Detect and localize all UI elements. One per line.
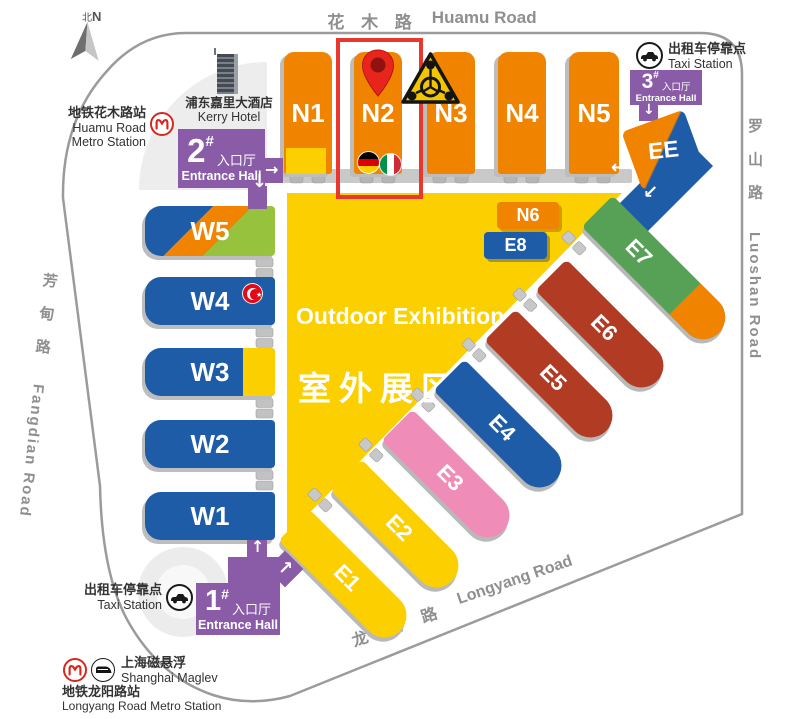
maglev-train-icon[interactable] xyxy=(91,658,115,682)
hall-w3[interactable]: W3 xyxy=(145,348,275,396)
taxi-ne-icon[interactable] xyxy=(636,42,663,69)
hall-w3-yellow-section xyxy=(243,348,275,396)
compass-label-en: N xyxy=(92,9,101,24)
huamu-metro-zh: 地铁花木路站 xyxy=(38,106,146,121)
hall-w5[interactable]: W5 xyxy=(145,206,275,256)
arrow-down-left-icon: ↙ xyxy=(643,184,658,202)
hall-e5-label: E5 xyxy=(534,359,571,396)
hall-e3-label: E3 xyxy=(431,459,468,496)
hall-w2-label: W2 xyxy=(191,429,230,460)
hall-w5-label: W5 xyxy=(191,216,230,247)
machinery-warning-icon[interactable] xyxy=(399,49,462,107)
luoshan-road-en: Luoshan Road xyxy=(746,232,763,360)
hall-n5-label: N5 xyxy=(577,98,610,129)
hall-e6-label: E6 xyxy=(585,309,622,346)
road-label-huamu: 花 木 路 Huamu Road xyxy=(327,8,537,33)
hall-e8-label: E8 xyxy=(504,235,526,256)
huamu-road-zh: 花 木 路 xyxy=(327,8,417,33)
metro-logo-icon[interactable] xyxy=(150,112,174,136)
taxi-sw-label: 出租车停靠点 Taxi Station xyxy=(58,583,162,612)
hotel-building-icon xyxy=(217,54,238,94)
longyang-metro-label: 地铁龙阳路站 Longyang Road Metro Station xyxy=(62,685,221,714)
kerry-hotel-en: Kerry Hotel xyxy=(180,110,278,124)
entrance-3-hash: # xyxy=(653,71,659,81)
hotel-antenna-icon xyxy=(214,48,216,55)
hall-e8[interactable]: E8 xyxy=(484,232,547,259)
entrance-hall-3[interactable]: 3 # 入口厅 Entrance Hall xyxy=(630,70,702,105)
longyang-metro-en: Longyang Road Metro Station xyxy=(62,700,221,714)
expo-map: 北N 花 木 路 Huamu Road 罗 山 路 Luoshan Road 芳… xyxy=(0,0,800,719)
entrance-1-zh: 入口厅 xyxy=(232,603,271,616)
entrance-2-zh: 入口厅 xyxy=(217,154,256,167)
huamu-metro-en1: Huamu Road xyxy=(38,121,146,135)
huamu-metro-en2: Metro Station xyxy=(38,135,146,149)
hall-n4-label: N4 xyxy=(505,98,538,129)
hall-e1-label: E1 xyxy=(328,559,365,596)
taxi-sw-icon[interactable] xyxy=(166,584,193,611)
hall-n1-label: N1 xyxy=(291,98,324,129)
hall-n1[interactable]: N1 xyxy=(284,52,332,174)
arrow-down-icon: ↓ xyxy=(643,103,655,117)
arrow-up-right-icon: ↗ xyxy=(278,560,293,578)
hall-n6-label: N6 xyxy=(516,205,539,226)
arrow-down-icon: ↓ xyxy=(252,173,267,191)
taxi-sw-zh: 出租车停靠点 xyxy=(58,583,162,598)
turkey-flag-icon: ★ xyxy=(242,283,263,304)
hall-w3-label: W3 xyxy=(191,357,230,388)
maglev-zh: 上海磁悬浮 xyxy=(121,656,218,671)
hall-w4[interactable]: W4 ★ xyxy=(145,277,275,325)
huamu-metro-label: 地铁花木路站 Huamu Road Metro Station xyxy=(38,106,146,150)
entrance-2-hash: # xyxy=(206,134,214,149)
entrance-1-hash: # xyxy=(221,587,229,601)
hall-n5[interactable]: N5 xyxy=(569,52,619,174)
taxi-sw-en: Taxi Station xyxy=(58,598,162,612)
arrow-left-icon: ← xyxy=(611,159,626,177)
longyang-metro-zh: 地铁龙阳路站 xyxy=(62,685,221,700)
hall-w1-label: W1 xyxy=(191,501,230,532)
hall-w1[interactable]: W1 xyxy=(145,492,275,540)
taxi-ne-zh: 出租车停靠点 xyxy=(668,42,746,57)
entrance-2-number: 2 xyxy=(187,134,205,167)
hall-w4-label: W4 xyxy=(191,286,230,317)
hall-n6[interactable]: N6 xyxy=(497,202,559,229)
hall-ee-label: EE xyxy=(646,135,679,165)
entrance-2-en: Entrance Hall xyxy=(182,170,262,183)
entrance-3-zh: 入口厅 xyxy=(662,83,691,93)
hall-e2-label: E2 xyxy=(380,509,417,546)
location-pin-icon[interactable] xyxy=(359,47,397,99)
entrance-3-number: 3 xyxy=(642,71,654,92)
hall-w2[interactable]: W2 xyxy=(145,420,275,468)
road-label-luoshan: 罗 山 路 Luoshan Road xyxy=(744,118,765,418)
compass-label: 北N xyxy=(82,8,101,26)
maglev-label: 上海磁悬浮 Shanghai Maglev xyxy=(121,656,218,685)
compass-label-zh: 北 xyxy=(82,13,92,24)
entrance-1-number: 1 xyxy=(205,587,221,616)
hall-n4[interactable]: N4 xyxy=(498,52,546,174)
taxi-ne-label: 出租车停靠点 Taxi Station xyxy=(668,42,746,71)
entrance-1-en: Entrance Hall xyxy=(198,619,278,632)
kerry-hotel-label: 浦东嘉里大酒店 Kerry Hotel xyxy=(180,96,278,125)
hall-n1-yellow-section xyxy=(286,148,326,174)
kerry-hotel-zh: 浦东嘉里大酒店 xyxy=(180,96,278,110)
huamu-road-en: Huamu Road xyxy=(432,8,537,33)
metro-logo-icon[interactable] xyxy=(63,658,87,682)
arrow-up-icon: ↑ xyxy=(251,539,264,555)
hall-e4-label: E4 xyxy=(483,409,520,446)
luoshan-road-zh: 罗 山 路 xyxy=(746,118,763,206)
entrance-hall-1[interactable]: 1 # 入口厅 Entrance Hall xyxy=(196,583,280,635)
